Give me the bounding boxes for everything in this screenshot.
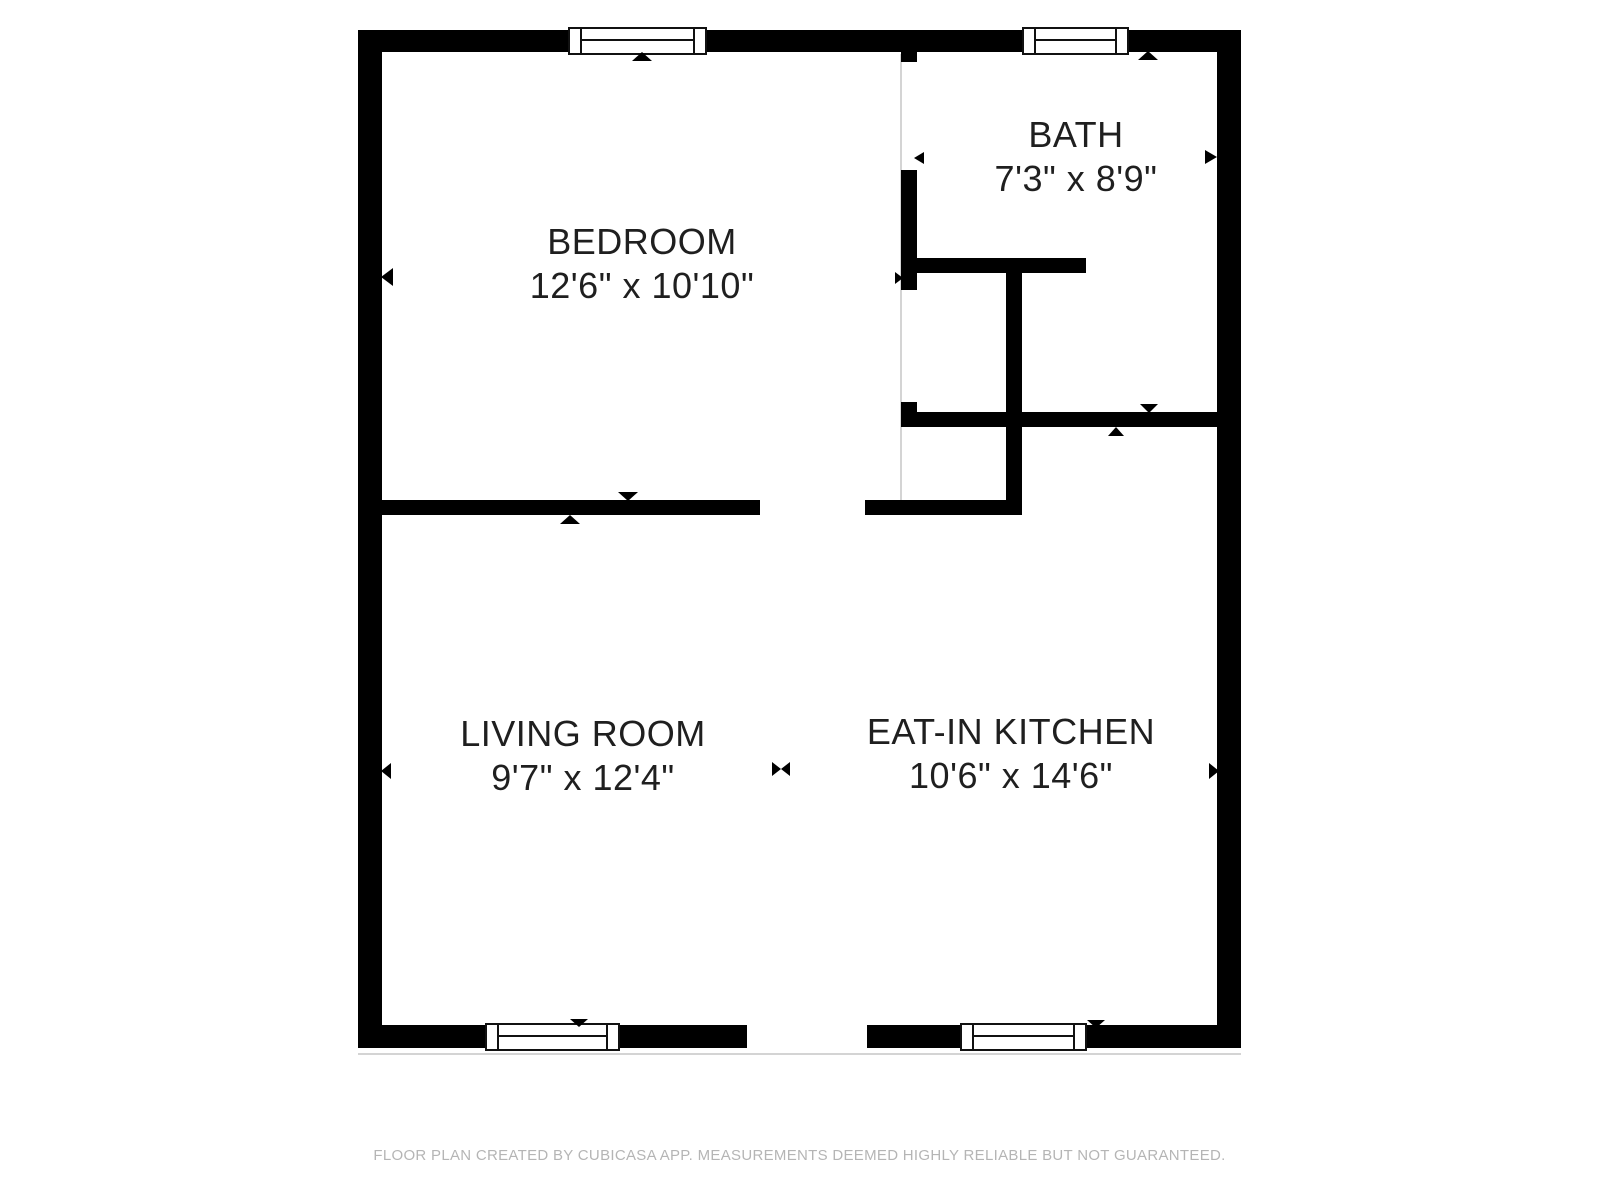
wall-arrow-right-icon <box>1205 150 1217 164</box>
room-name: BATH <box>995 113 1158 157</box>
window-jamb <box>693 29 695 53</box>
window-marker-up-icon <box>1138 51 1158 60</box>
door-arrow-left-icon <box>914 152 924 164</box>
room-dimensions: 7'3" x 8'9" <box>995 157 1158 201</box>
wall-bedroom-bottom-right-segment <box>865 500 1022 515</box>
wall-exterior-left <box>358 30 382 1048</box>
wall-closet-vertical <box>1006 273 1022 515</box>
wall-arrow-right-icon <box>1209 763 1219 779</box>
room-dimensions: 10'6" x 14'6" <box>867 754 1155 798</box>
window-glass-line <box>499 1035 606 1037</box>
wall-bath-interior-horizontal <box>901 258 1086 273</box>
window-jamb <box>606 1025 608 1049</box>
room-name: BEDROOM <box>530 220 754 264</box>
kitchen-window <box>960 1023 1087 1051</box>
bath-label: BATH 7'3" x 8'9" <box>995 113 1158 201</box>
bedroom-label: BEDROOM 12'6" x 10'10" <box>530 220 754 308</box>
door-arrow-right-icon <box>895 272 903 284</box>
door-marker-up-icon <box>1108 427 1124 436</box>
window-marker-up-icon <box>632 52 652 61</box>
footer-disclaimer: FLOOR PLAN CREATED BY CUBICASA APP. MEAS… <box>358 1146 1241 1166</box>
wall-arrow-left-icon <box>381 763 391 779</box>
wall-bath-bottom-stub <box>901 402 917 412</box>
wall-bedroom-bottom-left-segment <box>370 500 760 515</box>
door-marker-up-icon <box>560 515 580 524</box>
bottom-shadow-line <box>358 1053 1241 1055</box>
window-jamb <box>1115 29 1117 53</box>
living-room-window <box>485 1023 620 1051</box>
window-jamb <box>1073 1025 1075 1049</box>
window-marker-down-icon <box>1087 1020 1105 1028</box>
bath-window <box>1022 27 1129 55</box>
room-name: EAT-IN KITCHEN <box>867 710 1155 754</box>
wall-arrow-left-icon <box>381 268 393 286</box>
door-marker-down-icon <box>1140 404 1158 413</box>
bedroom-window <box>568 27 707 55</box>
room-separator-right-icon <box>772 762 781 776</box>
kitchen-label: EAT-IN KITCHEN 10'6" x 14'6" <box>867 710 1155 798</box>
floor-plan: BEDROOM 12'6" x 10'10" BATH 7'3" x 8'9" … <box>0 0 1600 1200</box>
window-glass-line <box>974 1035 1073 1037</box>
wall-bath-bottom <box>901 412 1217 427</box>
wall-divider-stub-top <box>901 50 917 62</box>
room-dimensions: 9'7" x 12'4" <box>460 756 706 800</box>
living-room-label: LIVING ROOM 9'7" x 12'4" <box>460 712 706 800</box>
wall-exterior-right <box>1217 30 1241 1048</box>
room-separator-left-icon <box>781 762 790 776</box>
window-glass-line <box>582 39 693 41</box>
room-dimensions: 12'6" x 10'10" <box>530 264 754 308</box>
window-glass-line <box>1036 39 1115 41</box>
room-name: LIVING ROOM <box>460 712 706 756</box>
window-marker-down-icon <box>570 1019 588 1027</box>
door-marker-down-icon <box>618 492 638 501</box>
